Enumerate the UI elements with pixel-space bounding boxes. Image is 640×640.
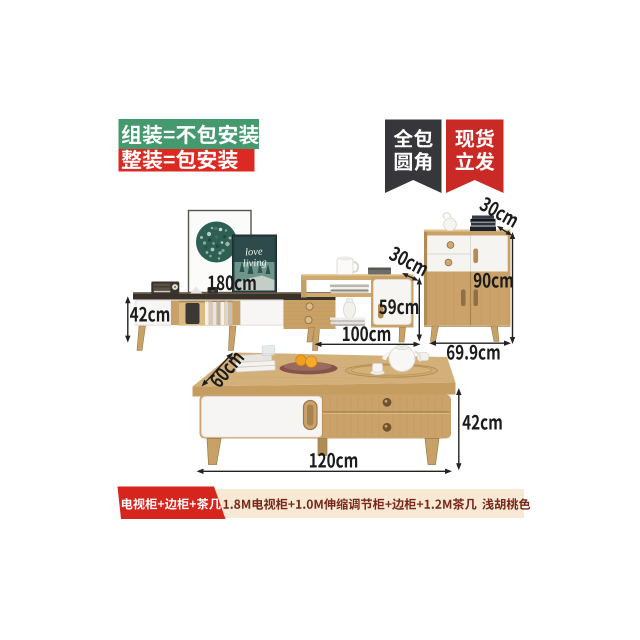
svg-text:living: living (243, 257, 267, 269)
svg-text:love: love (245, 247, 263, 259)
